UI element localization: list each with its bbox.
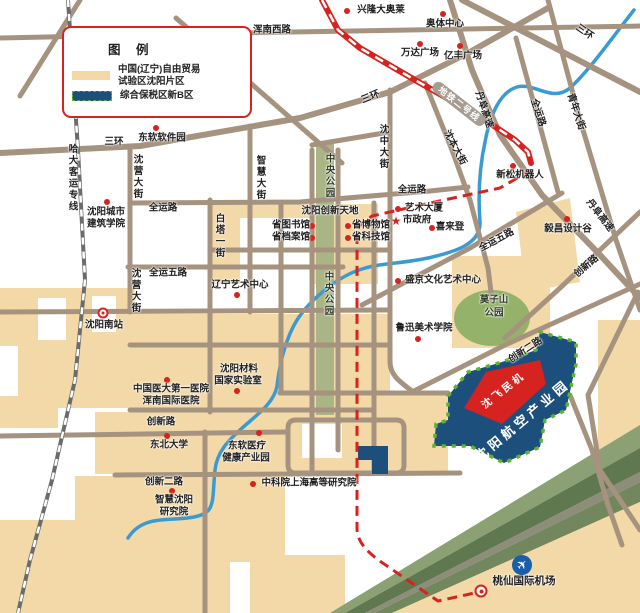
legend-item-label: 综合保税区新B区 <box>120 90 193 102</box>
map-label: 东北大学 <box>150 441 188 452</box>
map-label: 中央公园 <box>323 153 334 199</box>
dot-icon <box>250 481 256 487</box>
map-label: 桃仙国际机场 <box>493 575 556 587</box>
shenyang-ftz-map: 图 例 中国(辽宁)自由贸易 试验区沈阳片区 综合保税区新B区 ★✈ 浑南西路金… <box>0 0 640 613</box>
dot-icon <box>164 377 170 383</box>
dot-icon <box>417 41 423 47</box>
legend: 图 例 中国(辽宁)自由贸易 试验区沈阳片区 综合保税区新B区 <box>62 26 252 118</box>
legend-title: 图 例 <box>108 39 154 58</box>
dot-icon <box>395 278 401 284</box>
dot-icon <box>234 388 240 394</box>
map-label: 浑南国际医院 <box>142 397 199 408</box>
map-label: 沈阳材料 <box>220 365 258 376</box>
map-label: 智慧大街 <box>254 155 265 201</box>
map-label: 全运五路 <box>149 269 187 280</box>
dot-icon <box>457 43 463 49</box>
map-label: 中国医大第一医院 <box>133 385 209 396</box>
legend-item-bonded-zone: 综合保税区新B区 <box>72 90 193 102</box>
map-label: 市政府 <box>403 216 432 227</box>
map-label: 创新路 <box>147 418 176 429</box>
map-label: 白塔一街 <box>213 213 224 259</box>
map-label: 智慧沈阳 <box>155 496 193 507</box>
map-label: 中科院上海高等研究院 <box>261 479 356 490</box>
dot-icon <box>395 206 401 212</box>
map-label: 沈营大街 <box>131 154 142 200</box>
map-label: 沈营大街 <box>129 268 140 314</box>
map-label: 辽宁艺术中心 <box>211 281 268 292</box>
dot-icon <box>234 292 240 298</box>
map-label: 沈阳城市 <box>87 208 125 219</box>
dot-icon <box>104 199 110 205</box>
dot-icon <box>345 235 351 241</box>
map-label: 省档案馆 <box>272 233 310 244</box>
dot-icon <box>169 488 175 494</box>
map-label: 省博物馆 <box>352 221 390 232</box>
map-label: 艺术大厦 <box>405 204 443 215</box>
dot-icon <box>344 8 350 14</box>
map-label: 全运路 <box>149 204 178 215</box>
dot-icon <box>153 125 159 131</box>
map-label: 创新二路 <box>145 478 183 489</box>
map-label: 国家实验室 <box>214 377 262 388</box>
map-label: 奥体中心 <box>426 20 464 31</box>
map-label: 沈阳创新天地 <box>301 207 358 218</box>
map-label: 莫子山 <box>480 296 509 307</box>
map-label: 东软软件园 <box>138 134 186 145</box>
bonded-zone-swatch <box>72 91 112 101</box>
airport-icon: ✈ <box>512 555 532 575</box>
map-label: 三环 <box>104 138 123 149</box>
map-label: 公园 <box>484 309 503 320</box>
dot-icon <box>440 11 446 17</box>
map-label: 中央公园 <box>322 271 333 317</box>
station-icon <box>98 308 109 319</box>
metro-icon <box>475 585 488 598</box>
map-label: 鲁迅美术学院 <box>395 324 452 335</box>
map-label: 沈阳南站 <box>85 321 123 332</box>
map-label: 盛京文化艺术中心 <box>405 276 481 287</box>
legend-item-label: 中国(辽宁)自由贸易 试验区沈阳片区 <box>118 64 200 88</box>
dot-icon <box>415 336 421 342</box>
map-label: 亿丰广场 <box>444 52 482 63</box>
legend-item-ftz: 中国(辽宁)自由贸易 试验区沈阳片区 <box>72 64 200 88</box>
map-label: 喜来登 <box>436 223 465 234</box>
dot-icon <box>345 223 351 229</box>
star-icon: ★ <box>391 215 402 227</box>
map-label: 哈大客运专线 <box>66 144 77 213</box>
ftz-swatch <box>72 71 110 80</box>
map-label: 东软医疗 <box>228 442 266 453</box>
map-label: 全运路 <box>398 186 427 197</box>
map-label: 兴隆大奥莱 <box>357 6 405 17</box>
map-label: 新松机器人 <box>496 171 544 182</box>
map-label: 省图书馆 <box>272 221 310 232</box>
dot-icon <box>564 216 570 222</box>
map-label: 浑南西路 <box>253 26 291 37</box>
map-label: 万达广场 <box>401 49 439 60</box>
map-label: 健康产业园 <box>222 454 270 465</box>
dot-icon <box>164 433 170 439</box>
map-label: 沈中大街 <box>377 124 388 170</box>
dot-icon <box>256 430 262 436</box>
map-label: 研究院 <box>160 508 189 519</box>
road-shenzhong <box>390 90 412 391</box>
map-label: 毅昌设计谷 <box>544 225 592 236</box>
map-label: 建筑学院 <box>87 220 125 231</box>
dot-icon <box>510 163 516 169</box>
map-label: 省科技馆 <box>352 233 390 244</box>
